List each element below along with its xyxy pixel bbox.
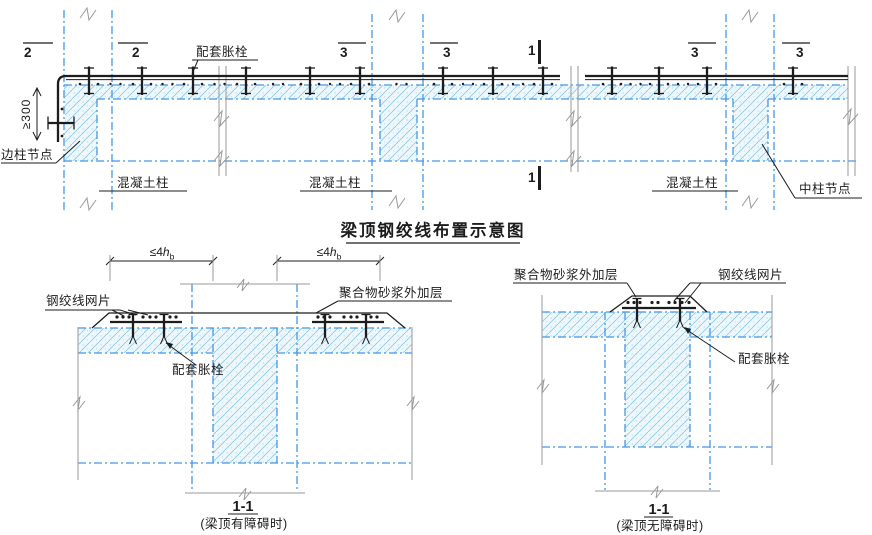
polymer-mortar-label-left-section: 聚合物砂浆外加层 <box>339 287 443 300</box>
section-caption-note-left: (梁顶有障碍时) <box>200 518 287 531</box>
expansion-bolt-label-right-section: 配套胀栓 <box>738 353 790 366</box>
dim-var: h <box>330 245 337 259</box>
column-break-marks <box>80 8 758 210</box>
slab-hatch <box>542 312 772 337</box>
strand-dots <box>115 315 378 318</box>
dim-var: h <box>163 245 170 259</box>
strand-mesh-label-left: 钢绞线网片 <box>46 295 111 308</box>
section-caption-number-right: 1-1 <box>649 503 670 518</box>
dim-4hb-left: ≤4hb <box>150 246 175 261</box>
section-mark-3-d: 3 <box>796 46 804 60</box>
slab-hatch <box>78 328 412 353</box>
section-mark-3-c: 3 <box>691 46 699 60</box>
middle-column-joint-label: 中柱节点 <box>799 183 851 196</box>
dim-4hb-lines <box>106 255 384 281</box>
dim-lt: ≤4 <box>317 245 330 259</box>
mortar-cap <box>92 313 405 328</box>
mid-joint-hatch-1 <box>380 99 417 161</box>
section-mark-3-a: 3 <box>340 46 348 60</box>
section-caption-number-left: 1-1 <box>233 500 254 515</box>
beam-slab-hatch <box>64 85 848 99</box>
mid-joint-hatch-2 <box>733 99 768 161</box>
edge-joint-hatch <box>65 99 97 161</box>
drawing-canvas: 2 2 3 3 1 3 3 1 配套胀栓 边柱节点 ≥300 混凝土柱 混凝土柱… <box>0 0 872 535</box>
dim-sub: b <box>337 251 342 261</box>
concrete-column-label-1: 混凝土柱 <box>117 177 169 190</box>
edge-column-joint-label: 边柱节点 <box>1 149 53 162</box>
dim-min-300-label: ≥300 <box>20 99 32 130</box>
section-caption-note-right: (梁顶无障碍时) <box>616 520 703 533</box>
section-clear <box>513 283 786 517</box>
dim-lt: ≤4 <box>150 245 163 259</box>
dim-4hb-right: ≤4hb <box>317 246 342 261</box>
concrete-column-label-3: 混凝土柱 <box>666 177 718 190</box>
expansion-bolt-label-left-section: 配套胀栓 <box>172 364 224 377</box>
strand-mesh-label-right: 钢绞线网片 <box>718 269 783 282</box>
web-hatch <box>625 337 690 447</box>
dim-sub: b <box>170 251 175 261</box>
expansion-bolt-label-top: 配套胀栓 <box>196 46 248 59</box>
drawing-title: 梁顶钢绞线布置示意图 <box>341 223 526 240</box>
polymer-mortar-label-right-section: 聚合物砂浆外加层 <box>514 269 618 282</box>
section-mark-1-bottom: 1 <box>528 171 536 185</box>
concrete-column-label-2: 混凝土柱 <box>309 177 361 190</box>
section-mark-2-right: 2 <box>132 46 140 60</box>
dim-300-line <box>33 88 41 140</box>
section-mark-3-b: 3 <box>443 46 451 60</box>
section-mark-1-top: 1 <box>528 44 536 58</box>
section-mark-2-left: 2 <box>24 46 32 60</box>
